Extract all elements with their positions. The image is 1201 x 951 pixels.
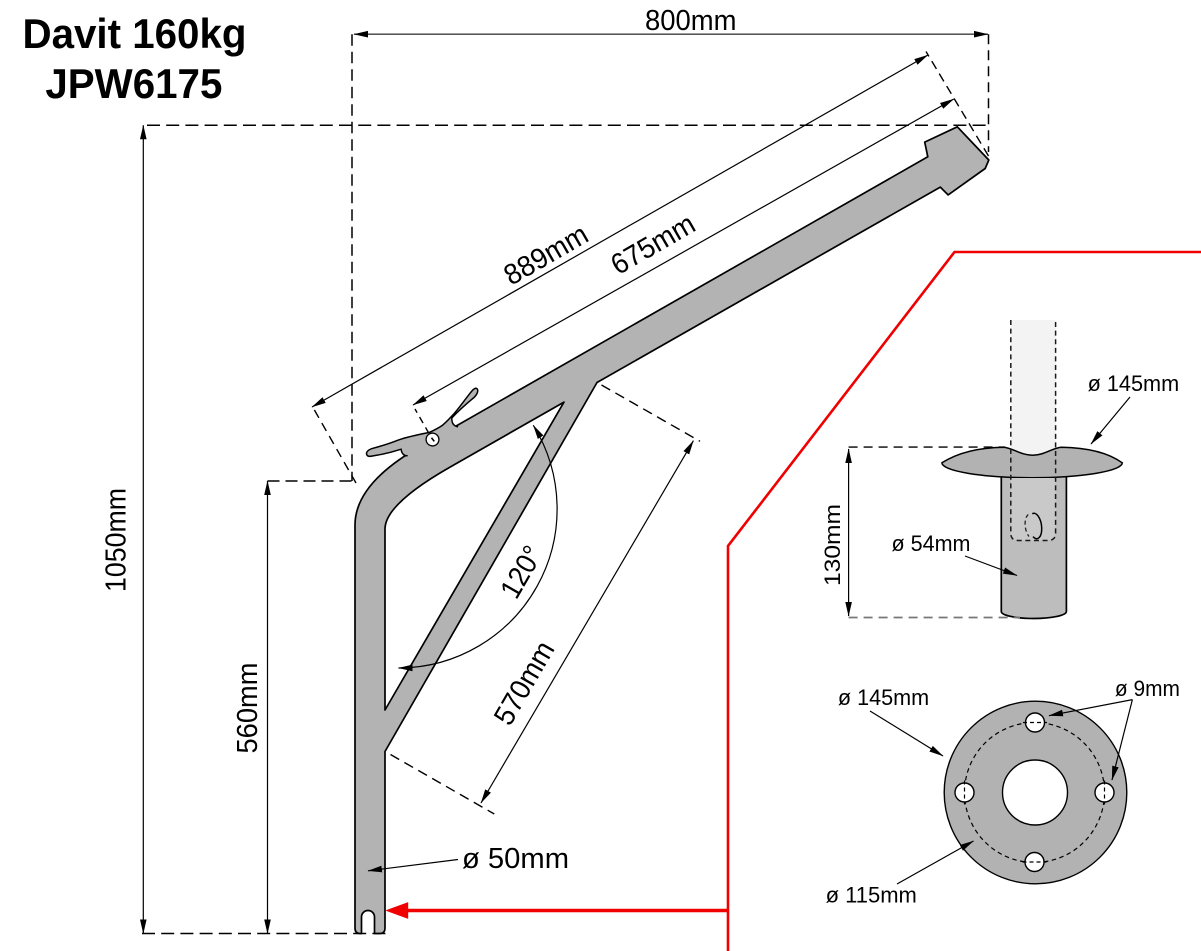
svg-text:Davit 160kg: Davit 160kg bbox=[23, 10, 247, 57]
svg-text:ø 9mm: ø 9mm bbox=[1115, 676, 1180, 701]
svg-text:ø 145mm: ø 145mm bbox=[1088, 371, 1180, 396]
svg-text:ø 115mm: ø 115mm bbox=[826, 883, 917, 908]
svg-text:ø 145mm: ø 145mm bbox=[838, 685, 929, 710]
svg-text:1050mm: 1050mm bbox=[101, 488, 133, 592]
svg-text:560mm: 560mm bbox=[232, 663, 264, 754]
svg-text:130mm: 130mm bbox=[820, 504, 845, 586]
svg-text:800mm: 800mm bbox=[645, 5, 737, 37]
svg-text:ø 50mm: ø 50mm bbox=[462, 843, 569, 875]
svg-text:ø 54mm: ø 54mm bbox=[892, 531, 971, 556]
svg-text:JPW6175: JPW6175 bbox=[45, 60, 222, 107]
